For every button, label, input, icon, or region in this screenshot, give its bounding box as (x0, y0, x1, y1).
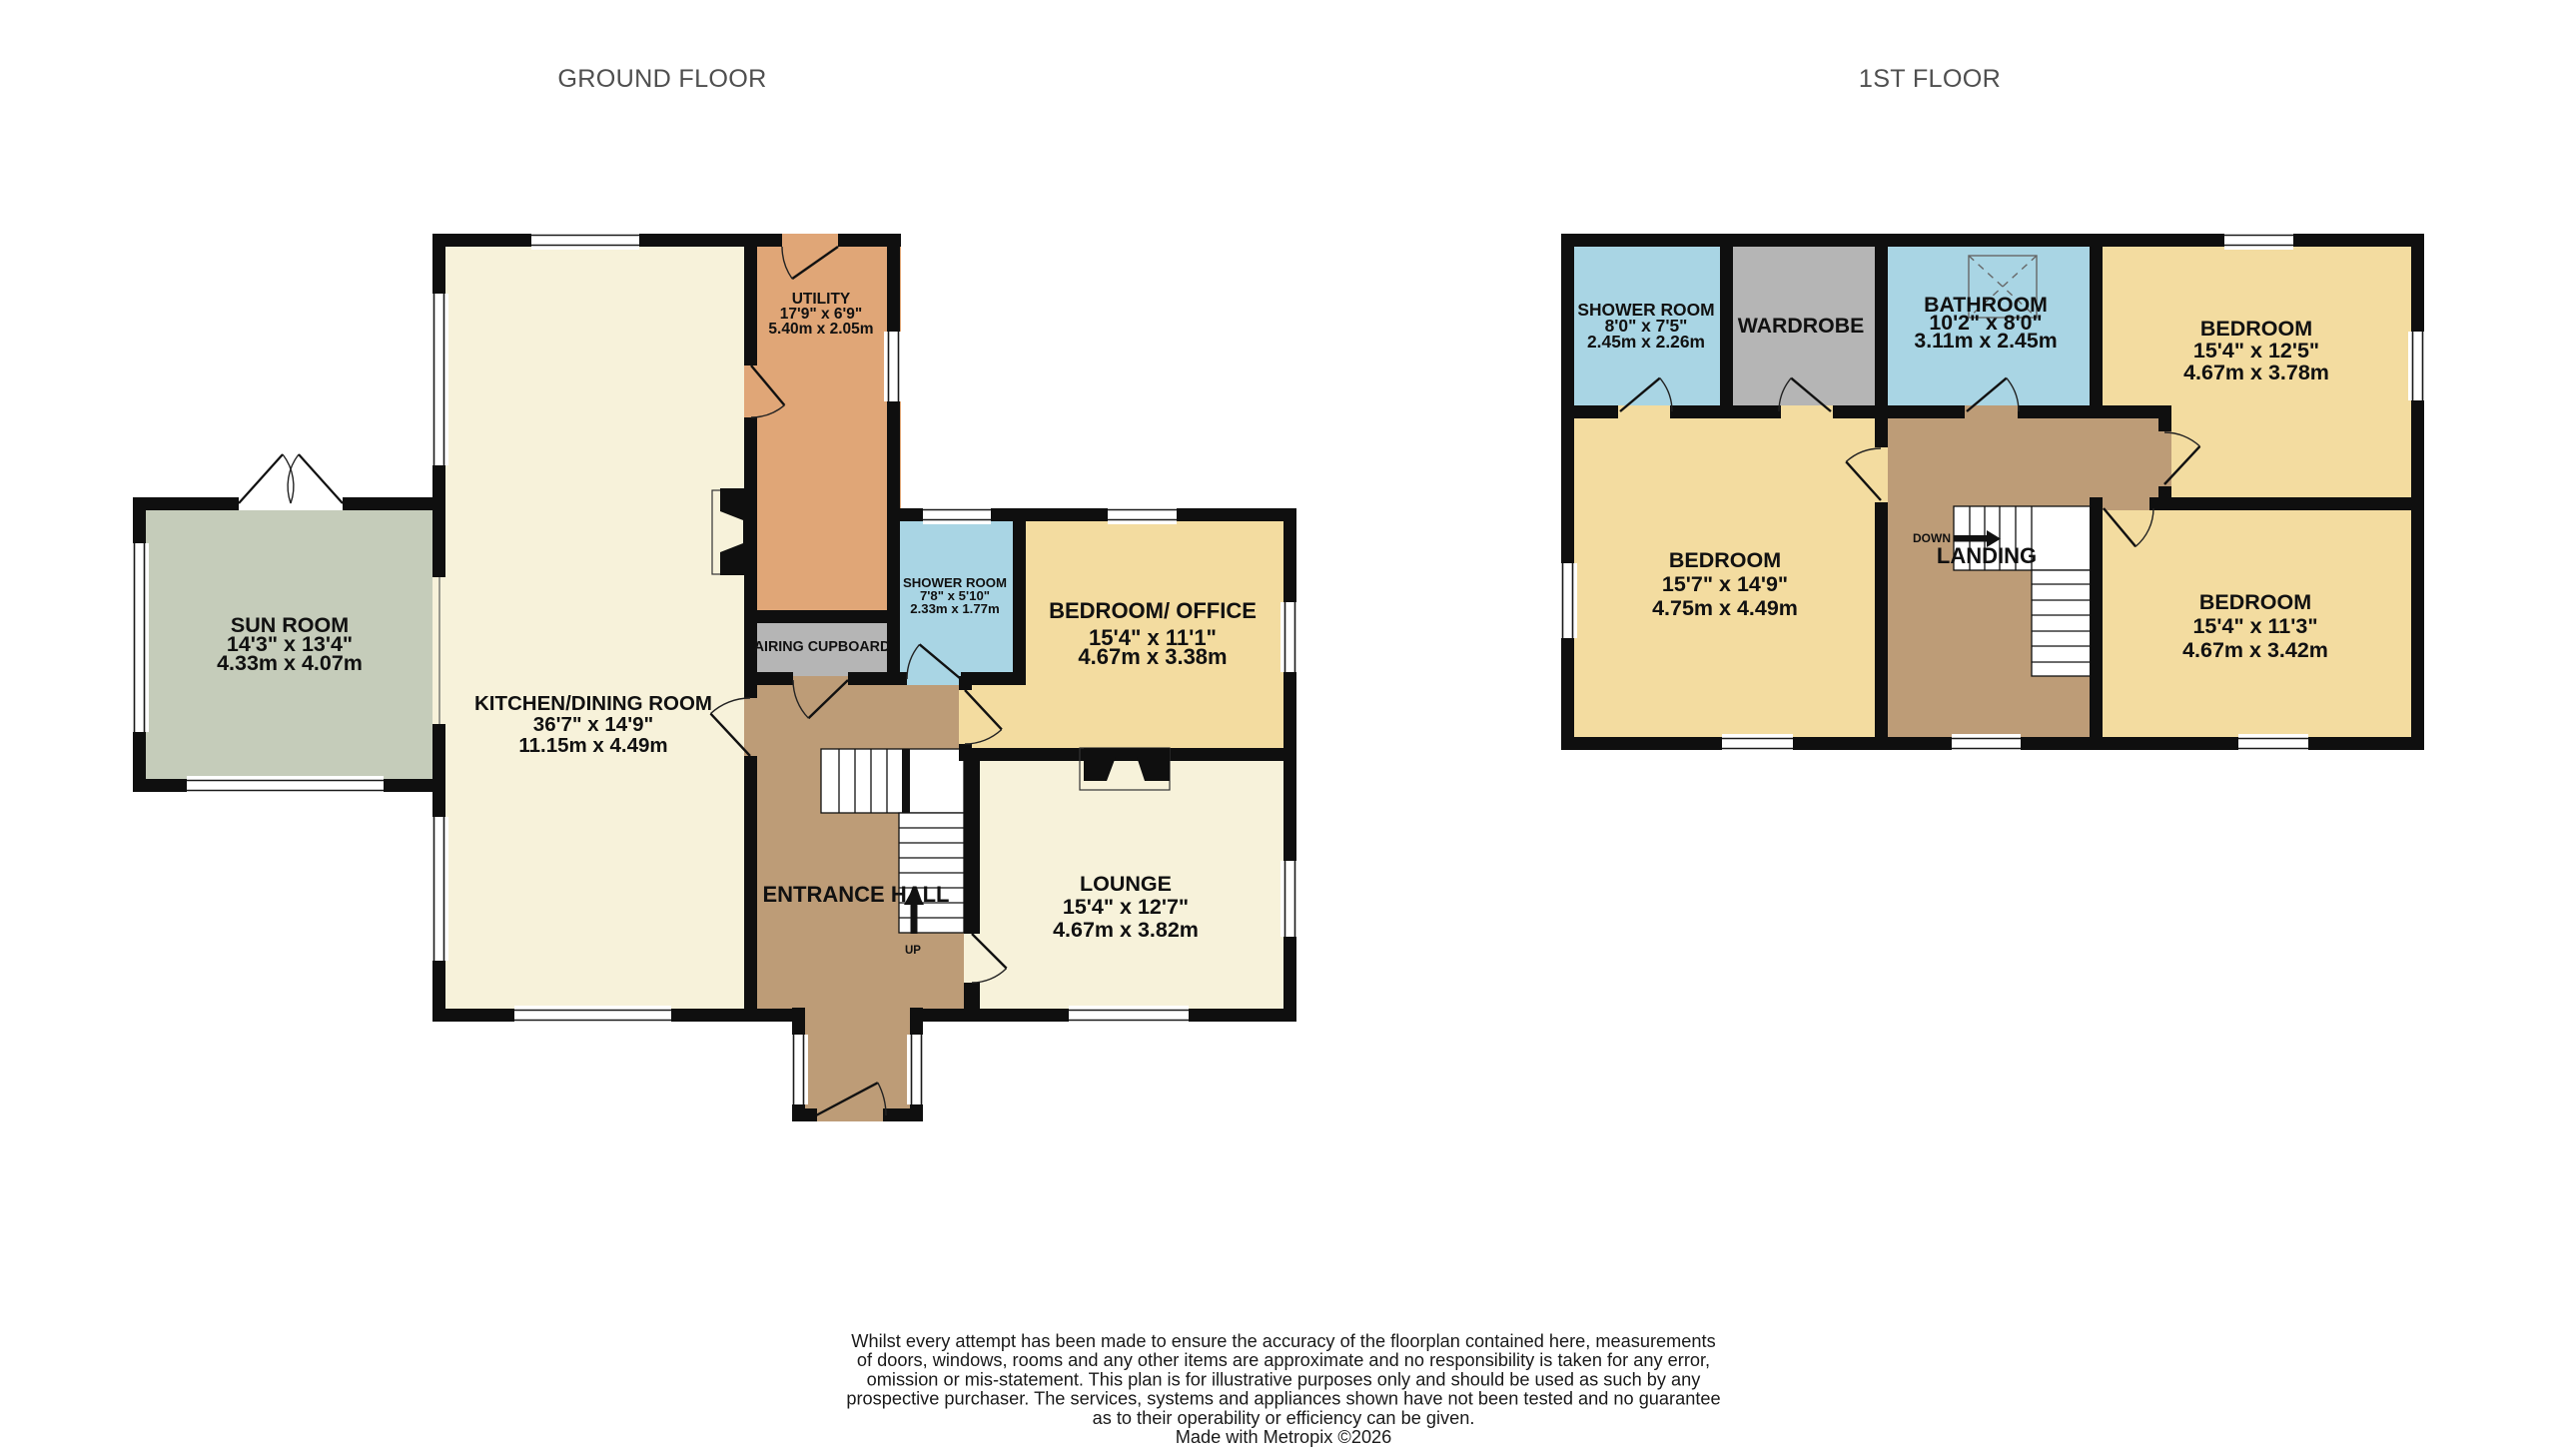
svg-text:2.33m x 1.77m: 2.33m x 1.77m (910, 601, 999, 616)
svg-text:of doors, windows, rooms and a: of doors, windows, rooms and any other i… (857, 1350, 1710, 1370)
svg-text:4.67m x 3.82m: 4.67m x 3.82m (1053, 918, 1199, 942)
svg-text:BEDROOM: BEDROOM (2199, 590, 2311, 614)
svg-text:15'4" x 11'3": 15'4" x 11'3" (2192, 614, 2317, 638)
svg-text:36'7" x 14'9": 36'7" x 14'9" (533, 713, 653, 736)
svg-text:LANDING: LANDING (1937, 543, 2037, 568)
svg-text:omission or mis-statement. Thi: omission or mis-statement. This plan is … (867, 1369, 1702, 1389)
svg-text:3.11m x 2.45m: 3.11m x 2.45m (1914, 329, 2057, 353)
svg-text:ENTRANCE HALL: ENTRANCE HALL (763, 882, 950, 907)
svg-text:4.67m x 3.42m: 4.67m x 3.42m (2182, 638, 2328, 662)
svg-text:as to their operability or eff: as to their operability or efficiency ca… (1093, 1408, 1475, 1428)
svg-text:15'4" x 12'7": 15'4" x 12'7" (1063, 895, 1189, 919)
svg-text:15'4" x 12'5": 15'4" x 12'5" (2193, 339, 2319, 363)
svg-text:AIRING CUPBOARD: AIRING CUPBOARD (754, 639, 891, 655)
svg-text:1ST FLOOR: 1ST FLOOR (1859, 65, 2001, 93)
svg-text:5.40m x 2.05m: 5.40m x 2.05m (768, 321, 873, 338)
svg-text:4.67m x 3.78m: 4.67m x 3.78m (2183, 361, 2329, 384)
svg-text:15'7" x 14'9": 15'7" x 14'9" (1662, 572, 1788, 596)
svg-text:UP: UP (905, 945, 921, 957)
svg-text:prospective purchaser. The ser: prospective purchaser. The services, sys… (846, 1389, 1720, 1409)
svg-text:WARDROBE: WARDROBE (1738, 314, 1865, 338)
svg-text:BEDROOM: BEDROOM (2200, 317, 2312, 341)
svg-text:2.45m x 2.26m: 2.45m x 2.26m (1587, 332, 1705, 352)
svg-text:11.15m x 4.49m: 11.15m x 4.49m (518, 734, 667, 757)
svg-text:BEDROOM: BEDROOM (1669, 548, 1781, 572)
svg-text:LOUNGE: LOUNGE (1080, 872, 1172, 896)
svg-text:BEDROOM/ OFFICE: BEDROOM/ OFFICE (1049, 598, 1257, 623)
svg-text:4.33m x 4.07m: 4.33m x 4.07m (217, 651, 363, 675)
svg-text:Made with Metropix ©2026: Made with Metropix ©2026 (1176, 1427, 1392, 1447)
svg-text:4.67m x 3.38m: 4.67m x 3.38m (1078, 644, 1227, 669)
svg-text:GROUND FLOOR: GROUND FLOOR (557, 65, 766, 93)
svg-text:KITCHEN/DINING ROOM: KITCHEN/DINING ROOM (474, 692, 712, 715)
svg-text:Whilst every attempt has been: Whilst every attempt has been made to en… (851, 1331, 1715, 1351)
svg-text:4.75m x 4.49m: 4.75m x 4.49m (1652, 596, 1798, 620)
